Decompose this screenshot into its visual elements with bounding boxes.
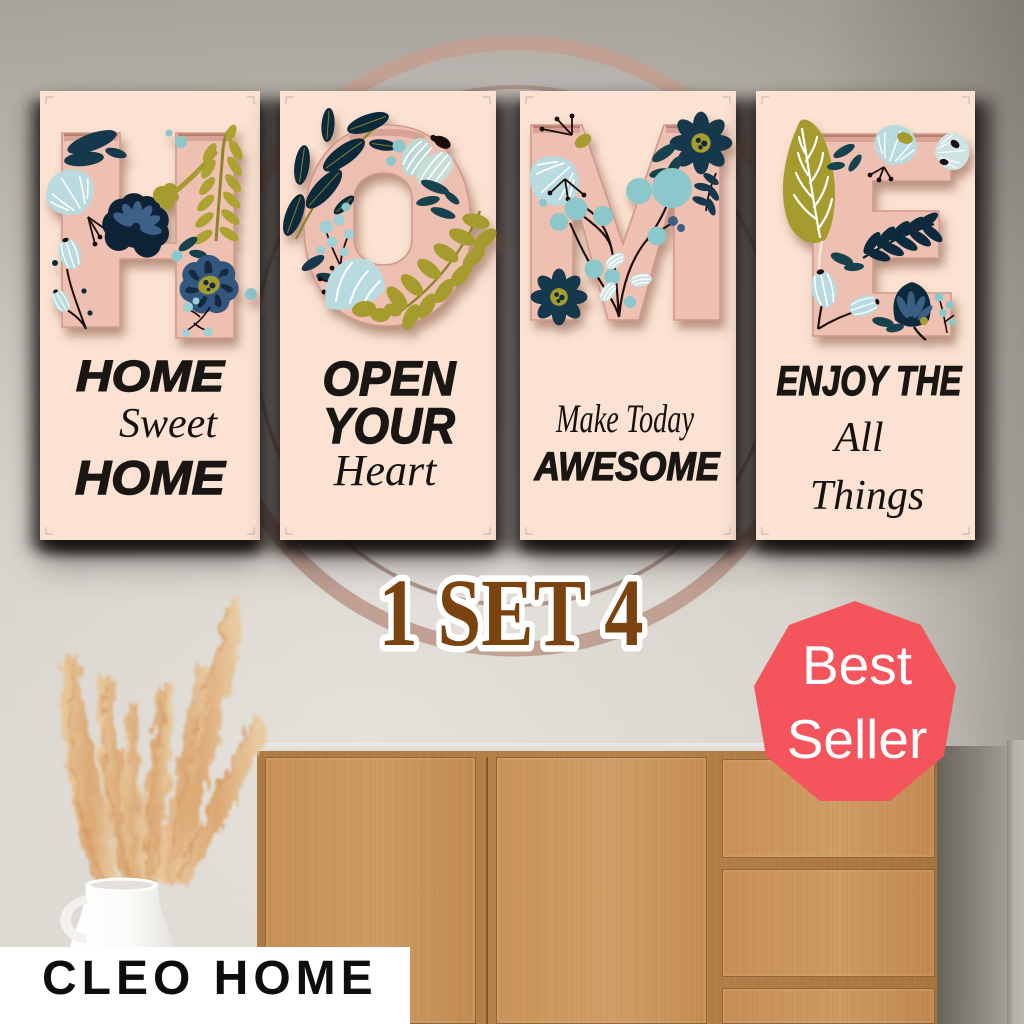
svg-text:HOME: HOME: [75, 451, 227, 504]
svg-text:Sweet: Sweet: [119, 401, 218, 447]
svg-text:AWESOME: AWESOME: [534, 445, 721, 489]
svg-text:Make Today: Make Today: [555, 396, 694, 441]
svg-text:Things: Things: [810, 473, 924, 519]
svg-text:ENJOY THE: ENJOY THE: [777, 357, 964, 404]
svg-text:Heart: Heart: [333, 446, 438, 495]
svg-text:All: All: [832, 415, 884, 461]
svg-text:HOME: HOME: [76, 352, 226, 401]
